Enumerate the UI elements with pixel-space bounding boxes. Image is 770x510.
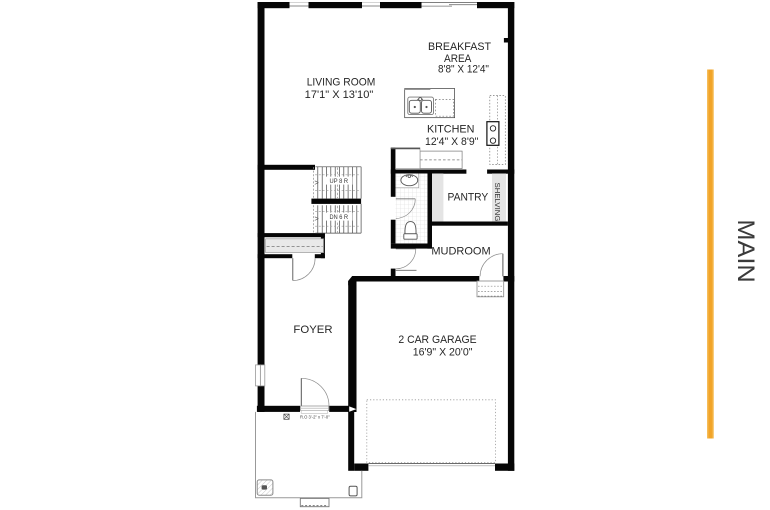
svg-text:2 CAR GARAGE: 2 CAR GARAGE <box>398 334 476 346</box>
svg-text:MUDROOM: MUDROOM <box>431 246 490 258</box>
svg-text:PANTRY: PANTRY <box>448 191 489 203</box>
svg-text:17'1" X 13'10": 17'1" X 13'10" <box>305 89 374 101</box>
svg-text:DN 6 R: DN 6 R <box>330 215 349 221</box>
svg-text:8'8" X 12'4": 8'8" X 12'4" <box>438 63 489 75</box>
svg-text:BREAKFAST: BREAKFAST <box>428 41 491 53</box>
svg-text:LIVING ROOM: LIVING ROOM <box>307 76 376 88</box>
svg-text:16'9" X 20'0": 16'9" X 20'0" <box>413 347 473 359</box>
svg-text:KITCHEN: KITCHEN <box>427 124 474 136</box>
svg-text:12'4" X 8'9": 12'4" X 8'9" <box>425 136 478 148</box>
svg-text:MAIN: MAIN <box>732 219 759 282</box>
svg-text:FOYER: FOYER <box>293 324 332 336</box>
svg-text:R.O 3'-2" x 7'-0": R.O 3'-2" x 7'-0" <box>300 414 330 419</box>
svg-text:UP 8 R: UP 8 R <box>330 179 349 185</box>
svg-text:SHELVING: SHELVING <box>493 183 502 222</box>
